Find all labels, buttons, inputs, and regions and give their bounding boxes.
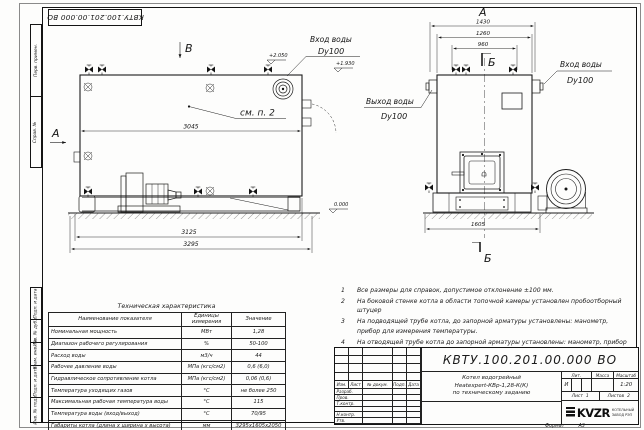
rev-empty-cell <box>393 418 407 424</box>
lifting-eye-icon <box>206 187 214 195</box>
outlet-dn-text: Dy100 <box>381 112 407 121</box>
tech-cell: Диапазон рабочего регулирования <box>49 338 182 350</box>
valve-icon <box>98 65 106 75</box>
dim-text: 1605 <box>471 222 485 228</box>
table-row: Диапазон рабочего регулирования%50-100 <box>49 338 286 350</box>
format-note: Формат А3 <box>545 424 585 429</box>
rev-empty-cell <box>407 356 421 364</box>
format-label: Формат <box>545 424 564 429</box>
valve-icon <box>425 183 433 193</box>
lifting-eye-icon <box>206 84 214 92</box>
lit-label: Лит. <box>562 372 592 378</box>
tech-col-header: Наименование показателя <box>49 313 182 327</box>
scale-label: Масштаб <box>614 372 638 378</box>
lifting-eye-icon <box>84 83 92 91</box>
valve-icon <box>207 65 215 75</box>
blower-fan <box>538 170 587 214</box>
dimension-3125: 3125 <box>75 198 302 241</box>
sheet-count-row: Лист 1 Листов 2 <box>561 392 638 401</box>
tech-cell: МВт <box>182 327 232 339</box>
company-logo-cell: KVZR КОТЕЛЬНЫЙ ЗАВОД РЭП <box>561 401 638 424</box>
rev-empty-cell <box>335 356 349 364</box>
table-row: Температура воды (вход/выход)°С70/95 <box>49 408 286 420</box>
tech-cell: МПа (кгс/см2) <box>182 362 232 374</box>
tech-cell: Габариты котла (длина х ширина х высота) <box>49 420 182 430</box>
inlet-flange-icon <box>273 79 293 99</box>
sign-row-label: Утв. <box>335 418 363 424</box>
tech-cell: 44 <box>232 350 286 362</box>
tech-cell: мм <box>182 420 232 430</box>
tech-cell: не более 250 <box>232 385 286 397</box>
mass-value <box>592 379 615 391</box>
rev-header: Лист <box>349 381 363 390</box>
note-text: Все размеры для справок, допустимое откл… <box>357 286 629 295</box>
company-name: КОТЕЛЬНЫЙ ЗАВОД РЭП <box>612 408 634 417</box>
tech-cell: Номинальная мощность <box>49 327 182 339</box>
ground-hatch <box>425 214 592 220</box>
inlet-dn-text: Dy100 <box>567 76 593 85</box>
inlet-text: Вход воды <box>560 60 602 69</box>
tech-cell: °С <box>182 397 232 409</box>
rev-empty-cell <box>407 373 421 381</box>
note-number: 3 <box>341 317 357 336</box>
rev-empty-cell <box>393 356 407 364</box>
format-value: А3 <box>578 424 584 429</box>
rev-empty-cell <box>335 348 349 356</box>
inlet-dn-text: Dy100 <box>318 47 344 56</box>
lit-mass-scale-values: И 1:20 <box>561 379 638 392</box>
view-arrow-a: А <box>50 127 66 143</box>
boiler-views-drawing: 3045 3125 3295 А В <box>0 0 644 285</box>
tech-cell: 3295х1605х2050 <box>232 420 286 430</box>
rev-empty-cell <box>335 364 349 372</box>
table-row: Рабочее давление водыМПа (кгс/см2)0,6 (6… <box>49 362 286 374</box>
lit-value: И <box>562 379 572 391</box>
frame-column-bottom: Подп. и дата Инв. № дубл. Взам. инв. № П… <box>30 287 42 423</box>
tech-cell: °С <box>182 408 232 420</box>
note-number: 2 <box>341 297 357 316</box>
tech-cell: 70/95 <box>232 408 286 420</box>
tech-cell: °С <box>182 385 232 397</box>
front-outlet-label: Выход воды Dy100 <box>364 90 432 121</box>
sight-window <box>502 93 522 109</box>
tech-cell: Температура воды (вход/выход) <box>49 408 182 420</box>
frame-cell: Подп. и дата <box>31 366 41 398</box>
inlet-text: Вход воды <box>310 35 352 44</box>
note-item: 3На подводящей трубе котла, до запорной … <box>341 317 629 336</box>
sheet-label: Лист <box>572 394 583 399</box>
valve-icon <box>85 65 93 75</box>
lit-cell-empty <box>572 379 582 391</box>
elev-text: +2.050 <box>269 53 288 59</box>
title-block: Изм. Лист № докум. Подп. Дата Разраб. Пр… <box>334 347 639 425</box>
revision-table: Изм. Лист № докум. Подп. Дата Разраб. Пр… <box>335 348 421 424</box>
elevation-1930: +1.930 <box>334 61 355 72</box>
tech-cell: 50-100 <box>232 338 286 350</box>
frame-cell: Взам. инв. № <box>31 343 41 366</box>
valve-icon <box>264 65 272 75</box>
doc-number: КВТУ.100.201.00.000 ВО <box>443 353 617 367</box>
lit-cell-empty <box>582 379 592 391</box>
frame-label: Подп. и дата <box>34 367 39 397</box>
rev-empty-cell <box>407 364 421 372</box>
frame-label: Взам. инв. № <box>34 339 39 369</box>
tech-cell: Максимальная рабочая температура воды <box>49 397 182 409</box>
tech-cell: 0,06 (0,6) <box>232 373 286 385</box>
rev-header: Дата <box>407 381 421 390</box>
section-mark-bottom: Б <box>472 242 492 265</box>
boiler-body-side <box>80 75 302 196</box>
motor <box>146 184 168 204</box>
table-row: Максимальная рабочая температура воды°С1… <box>49 397 286 409</box>
furnace-door <box>452 152 504 193</box>
valve-icon <box>509 65 517 75</box>
frame-label: Подп. и дата <box>34 289 39 319</box>
rev-header: № докум. <box>363 381 393 390</box>
note-text: На подводящей трубе котла, до запорной а… <box>357 317 629 336</box>
table-row: Гидравлическое сопротивление котлаМПа (к… <box>49 373 286 385</box>
tech-cell: МПа (кгс/см2) <box>182 373 232 385</box>
rev-empty-cell <box>349 356 363 364</box>
sheet-value: 1 <box>586 394 589 399</box>
rev-empty-cell <box>363 356 393 364</box>
outlet-text: Выход воды <box>366 97 414 106</box>
note-item: 2На боковой стенке котла в области топоч… <box>341 297 629 316</box>
kvzr-logo-text: KVZR <box>577 406 610 420</box>
rev-empty-cell <box>363 418 393 424</box>
elev-text: 0.000 <box>334 202 348 208</box>
tech-cell: Расход воды <box>49 350 182 362</box>
rev-empty-cell <box>335 373 349 381</box>
tech-col-header: Значение <box>232 313 286 327</box>
rev-empty-cell <box>393 373 407 381</box>
base-frame-front <box>433 193 531 212</box>
tech-characteristics: Техническая характеристика Наименование … <box>48 303 285 430</box>
rev-empty-cell <box>407 348 421 356</box>
kvzr-logo-icon <box>566 407 575 418</box>
table-row: Габариты котла (длина х ширина х высота)… <box>49 420 286 430</box>
dimension-3045: 3045 <box>82 124 301 132</box>
product-model: Heatexpert-КВр-1,28-К(К) <box>455 383 529 391</box>
view-letter: А <box>478 6 487 19</box>
frame-cell: Инв. № подл. <box>31 398 41 420</box>
rev-empty-cell <box>349 373 363 381</box>
table-row: Номинальная мощностьМВт1,28 <box>49 327 286 339</box>
scale-value: 1:20 <box>614 379 638 391</box>
side-stub <box>74 152 80 162</box>
front-inlet-label: Вход воды Dy100 <box>544 60 612 85</box>
company-line: ЗАВОД РЭП <box>612 413 634 417</box>
side-view: 3045 3125 3295 А В <box>50 35 360 253</box>
table-row: Расход водым3/ч44 <box>49 350 286 362</box>
tech-cell: % <box>182 338 232 350</box>
tech-header-row: Наименование показателя Единицы измерени… <box>49 313 286 327</box>
elev-text: +1.930 <box>336 61 355 67</box>
note-item: 1Все размеры для справок, допустимое отк… <box>341 286 629 295</box>
section-mark-top: Б <box>482 53 496 69</box>
tech-table: Наименование показателя Единицы измерени… <box>48 312 286 430</box>
dimension-1260: 1260 <box>437 31 532 73</box>
rev-empty-cell <box>349 348 363 356</box>
dim-text: 1430 <box>476 20 490 26</box>
product-description: Котел водогрейный Heatexpert-КВр-1,28-К(… <box>421 372 561 401</box>
view-arrow-b: В <box>180 42 193 58</box>
tech-col-header: Единицы измерения <box>182 313 232 327</box>
rev-header: Изм. <box>335 381 349 390</box>
rev-empty-cell <box>363 348 393 356</box>
tech-cell: м3/ч <box>182 350 232 362</box>
valve-icon <box>462 65 470 75</box>
elevation-2050: +2.050 <box>267 53 288 64</box>
mass-label: Масса <box>592 372 615 378</box>
lifting-eye-icon <box>84 152 92 160</box>
base-frame-side <box>79 173 300 212</box>
rev-empty-cell <box>393 348 407 356</box>
rev-header: Подп. <box>393 381 407 390</box>
section-letter: Б <box>484 252 492 265</box>
view-letter: В <box>185 42 193 55</box>
ground-hatch <box>68 214 320 220</box>
dim-text: 960 <box>478 42 489 48</box>
note-number: 1 <box>341 286 357 295</box>
lit-mass-scale-header: Лит. Масса Масштаб <box>561 372 638 379</box>
rev-empty-cell <box>393 364 407 372</box>
empty-cell <box>421 401 561 424</box>
note-ref-text: см. п. 2 <box>240 109 275 119</box>
dim-text: 3045 <box>183 124 198 131</box>
tech-table-title: Техническая характеристика <box>48 303 285 310</box>
dim-text: 1260 <box>476 31 490 37</box>
rev-empty-cell <box>349 364 363 372</box>
valve-icon <box>452 65 460 75</box>
table-row: Температура уходящих газов°Сне более 250 <box>49 385 286 397</box>
frame-label: Инв. № подл. <box>34 394 39 424</box>
tech-cell: Рабочее давление воды <box>49 362 182 374</box>
tech-cell: Температура уходящих газов <box>49 385 182 397</box>
frame-cell: Подп. и дата <box>31 288 41 320</box>
inlet-flange <box>532 80 543 93</box>
rev-empty-cell <box>363 373 393 381</box>
section-letter: Б <box>488 56 496 69</box>
sheets-label: Листов <box>608 394 624 399</box>
tech-cell: Гидравлическое сопротивление котла <box>49 373 182 385</box>
side-inlet-label: Вход воды Dy100 <box>287 35 360 76</box>
dim-text: 3295 <box>183 241 198 248</box>
company-line: КОТЕЛЬНЫЙ <box>612 408 634 412</box>
view-letter: А <box>51 127 60 140</box>
tech-cell: 0,6 (6,0) <box>232 362 286 374</box>
doc-number-cell: КВТУ.100.201.00.000 ВО <box>421 348 638 372</box>
note-ref-leader: см. п. 2 <box>188 105 286 118</box>
rev-empty-cell <box>407 418 421 424</box>
tech-cell: 1,28 <box>232 327 286 339</box>
front-view: А 1430 1260 960 Б <box>364 6 612 265</box>
sheets-value: 2 <box>627 394 630 399</box>
rev-empty-cell <box>363 364 393 372</box>
tech-cell: 115 <box>232 397 286 409</box>
elevation-0000: 0.000 <box>329 202 348 213</box>
drawing-sheet: КВТУ.100.201.00.000 ВО Перв. примен. Спр… <box>0 0 644 430</box>
product-note: по техническому заданию <box>453 390 531 398</box>
note-text: На боковой стенке котла в области топочн… <box>357 297 629 316</box>
door-hinge <box>302 100 336 133</box>
product-name: Котел водогрейный <box>462 375 521 383</box>
dim-text: 3125 <box>181 229 196 236</box>
